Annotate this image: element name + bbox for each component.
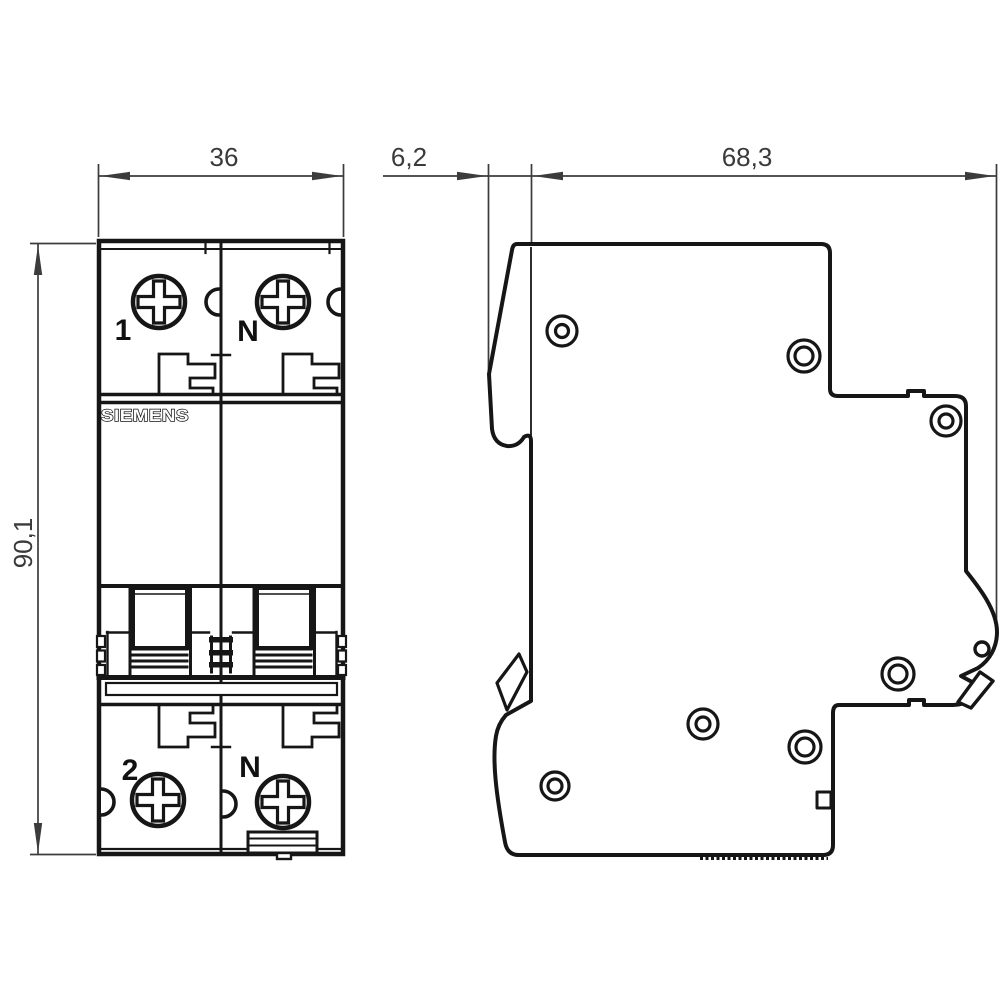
front-clip-tab: [497, 654, 527, 710]
arrow-up-icon: [34, 245, 42, 275]
rail-guide-notch: [817, 792, 831, 808]
handle-tie: [209, 637, 233, 672]
rivet: [688, 709, 718, 739]
dimension-drawing-page: 36 6,2 68,3 90,1: [0, 0, 1000, 1000]
rivet: [547, 316, 577, 346]
arrow-right-icon: [965, 172, 995, 180]
screw-top-left: [133, 276, 185, 328]
arrow-down-icon: [34, 823, 42, 853]
notch-semicircle: [101, 789, 114, 815]
faceplate-strip: [106, 683, 337, 695]
rivet: [931, 406, 961, 436]
dim-label-front-width: 36: [210, 142, 239, 172]
rivet: [788, 340, 820, 372]
dim-front-width: [99, 164, 344, 237]
screw-bottom-left: [132, 774, 184, 826]
screw-top-right: [257, 276, 309, 328]
arrow-left-icon: [533, 172, 563, 180]
terminal-label-top-left: 1: [115, 314, 132, 347]
toggle-lever-left: [133, 588, 187, 667]
rivet: [541, 772, 569, 800]
notch-semicircle: [223, 791, 236, 817]
rivet: [789, 731, 821, 763]
dimension-drawing: 36 6,2 68,3 90,1: [0, 0, 1000, 1000]
dim-height: [30, 244, 96, 855]
rivet: [882, 658, 914, 690]
notch-semicircle: [328, 289, 341, 315]
toggle-lever-right: [257, 588, 311, 667]
arrow-right-icon: [312, 172, 342, 180]
brand-label: SIEMENS: [101, 406, 189, 425]
arrow-left-icon: [100, 172, 130, 180]
screw-bottom-right: [257, 776, 309, 828]
notch-semicircle: [206, 289, 219, 315]
terminal-label-bottom-right: N: [239, 751, 261, 784]
dim-label-height: 90,1: [8, 518, 38, 569]
terminal-label-top-right: N: [237, 315, 259, 348]
dim-label-front-protrusion: 6,2: [391, 142, 427, 172]
side-view: [489, 244, 997, 859]
dim-label-body-depth: 68,3: [722, 142, 773, 172]
terminal-label-bottom-left: 2: [122, 754, 139, 787]
arrow-right-icon: [457, 172, 487, 180]
